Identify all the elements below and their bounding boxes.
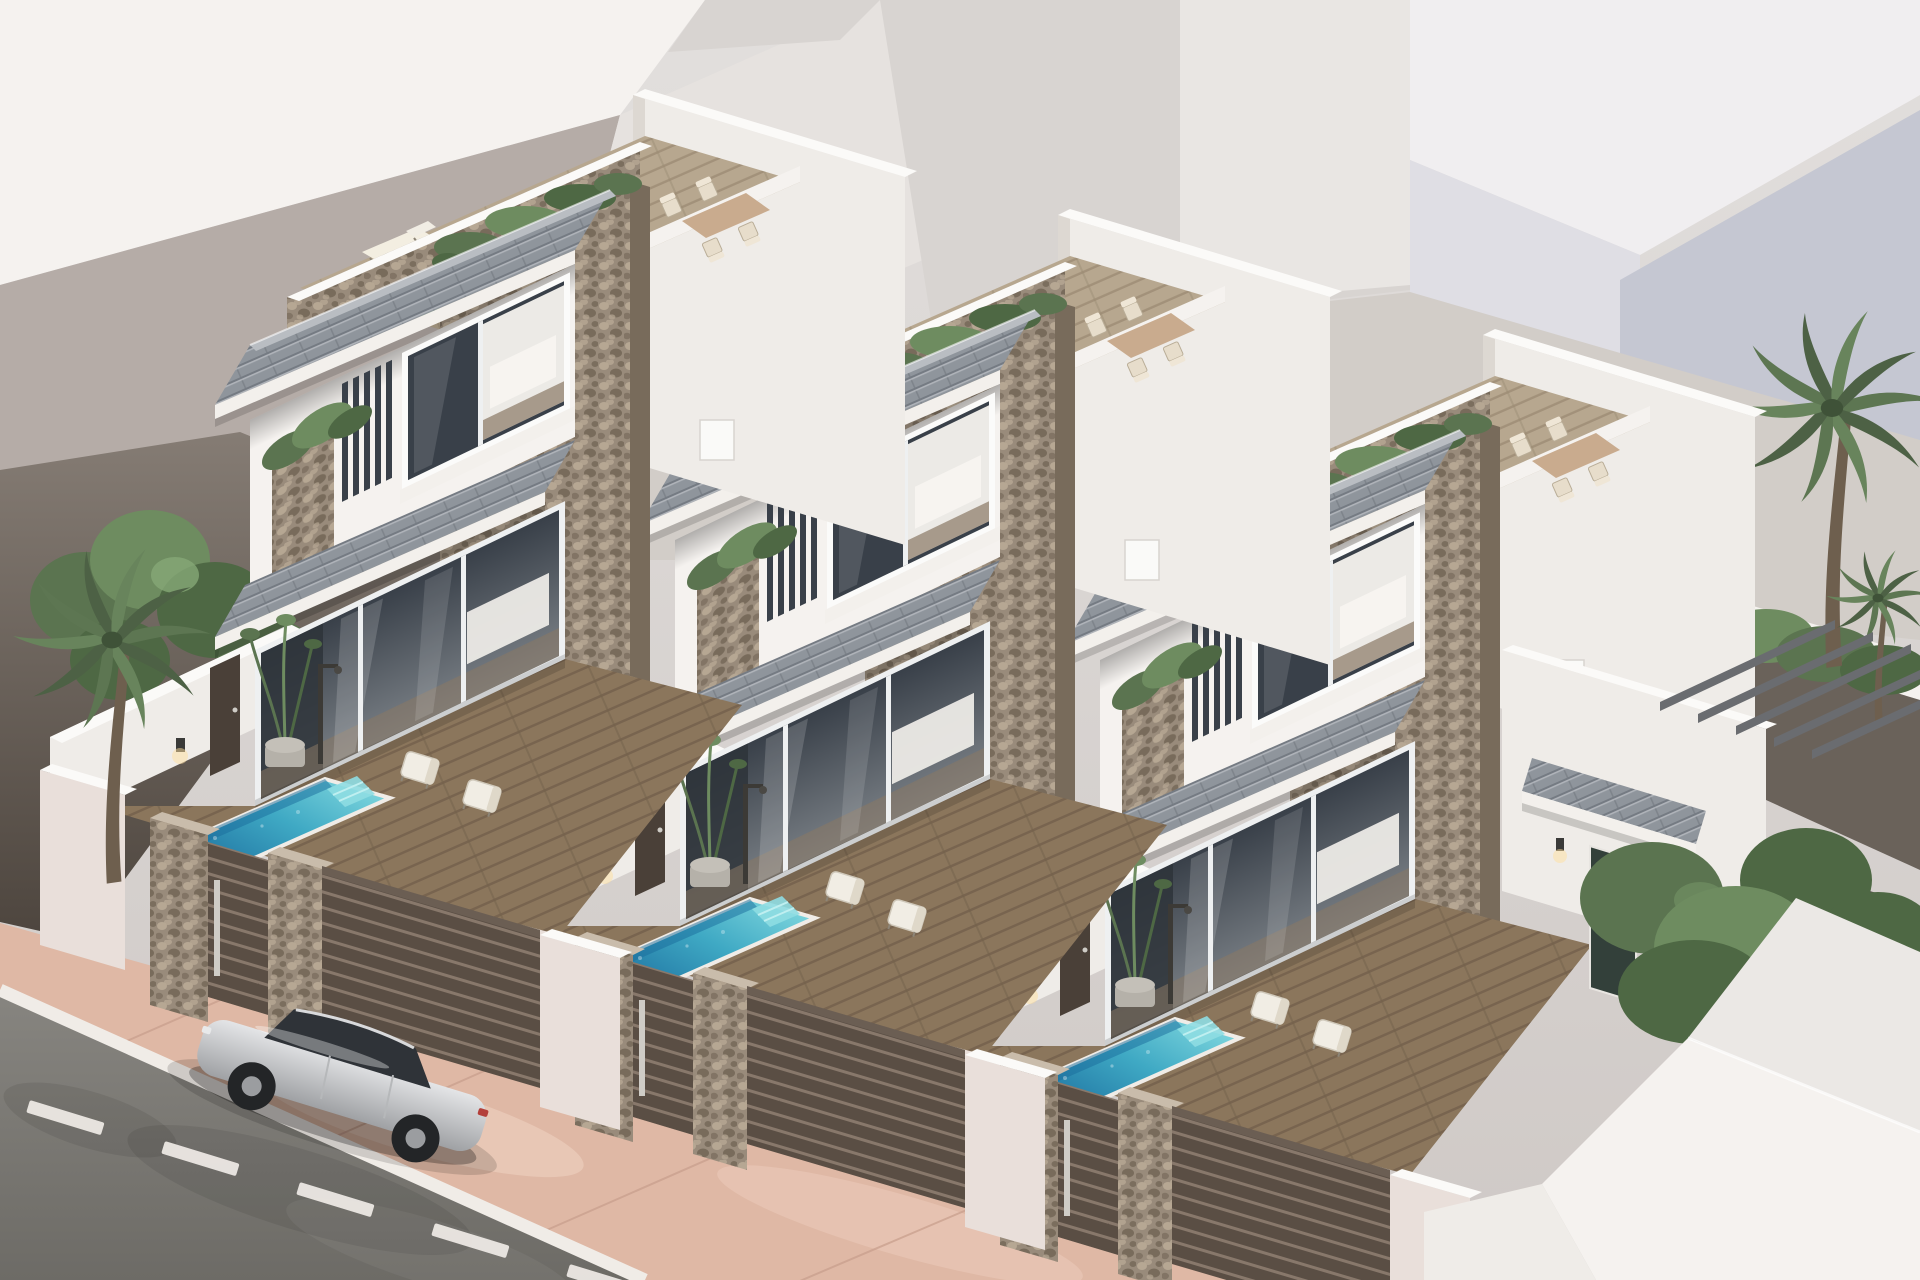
- render-canvas: Aerial 3D render of three new-build two-…: [0, 0, 1920, 1280]
- villa-render-scene: Aerial 3D render of three new-build two-…: [0, 0, 1920, 1280]
